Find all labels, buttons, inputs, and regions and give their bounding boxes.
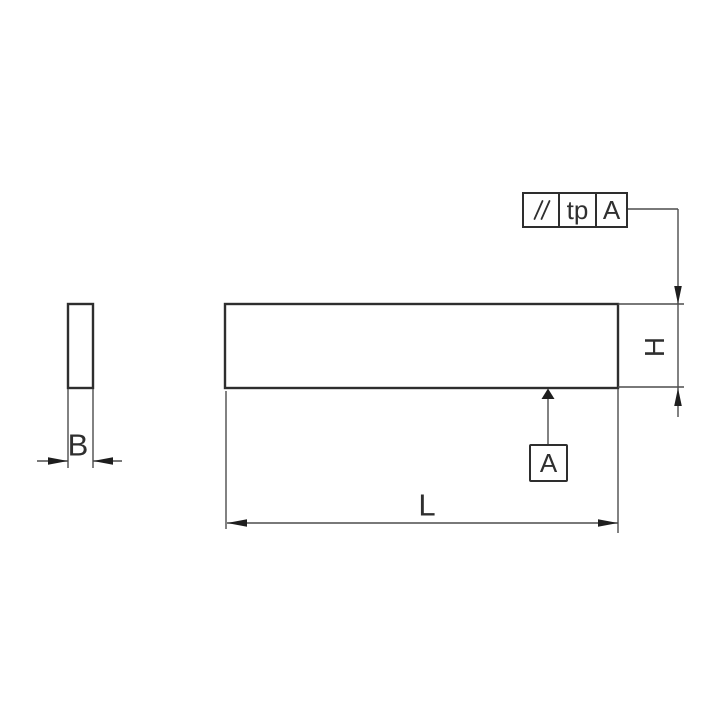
fcf-datum-ref-cell: A xyxy=(595,194,626,226)
datum-flag xyxy=(542,389,555,445)
feature-control-frame: tp A xyxy=(522,192,628,228)
datum-triangle-icon xyxy=(542,389,555,400)
fcf-tolerance-cell: tp xyxy=(558,194,595,226)
datum-box: A xyxy=(529,444,568,482)
fcf-symbol-cell xyxy=(524,194,558,226)
h-dimension xyxy=(618,209,684,417)
b-arrow-left-icon xyxy=(48,457,68,465)
dim-l-label: L xyxy=(418,490,435,521)
side-view-outline xyxy=(68,304,93,388)
l-arrow-left-icon xyxy=(227,519,247,527)
h-arrow-bottom-icon xyxy=(674,388,682,406)
main-view-outline xyxy=(225,304,618,388)
drawing-geometry xyxy=(0,0,720,720)
drawing-canvas: B L H tp A A xyxy=(0,0,720,720)
b-arrow-right-icon xyxy=(93,457,113,465)
dim-b-label: B xyxy=(68,430,89,461)
l-arrow-right-icon xyxy=(598,519,618,527)
h-arrow-top-icon xyxy=(674,286,682,304)
parallelism-icon xyxy=(530,198,552,222)
dim-h-label: H xyxy=(641,337,669,357)
